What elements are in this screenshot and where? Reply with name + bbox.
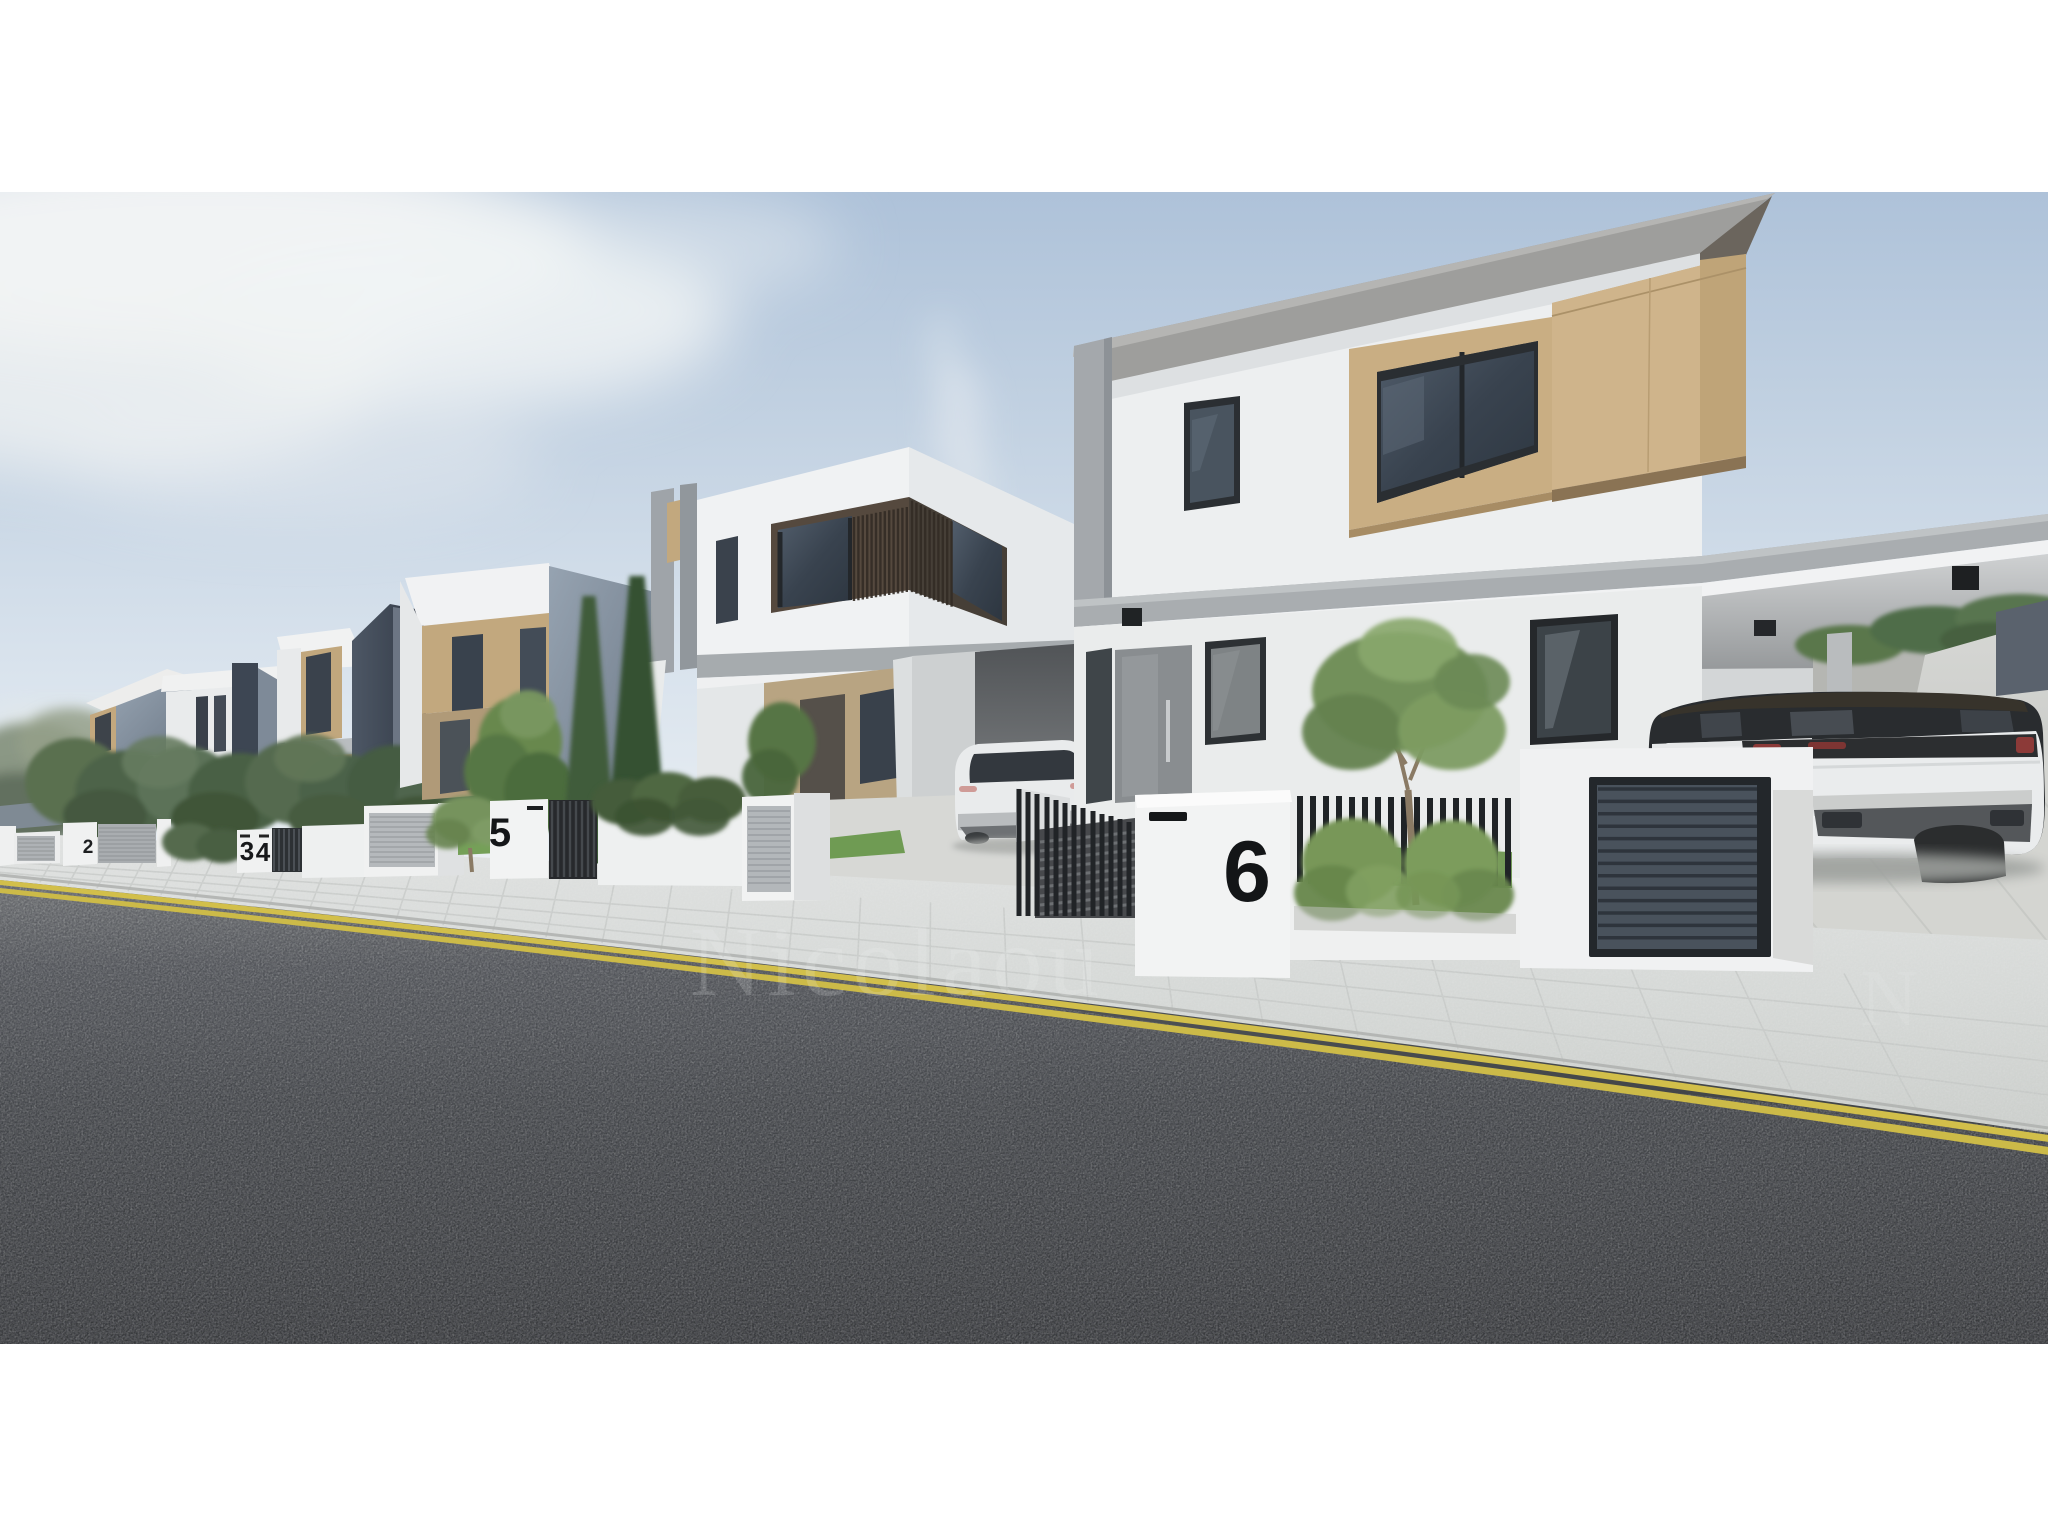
svg-text:Nicolaou: Nicolaou <box>690 906 1105 1017</box>
svg-text:6: 6 <box>1223 824 1271 920</box>
svg-text:4: 4 <box>256 837 271 867</box>
svg-text:2: 2 <box>83 837 94 858</box>
svg-text:N: N <box>1860 955 1918 1043</box>
svg-text:3: 3 <box>240 836 254 866</box>
svg-text:5: 5 <box>489 811 511 855</box>
